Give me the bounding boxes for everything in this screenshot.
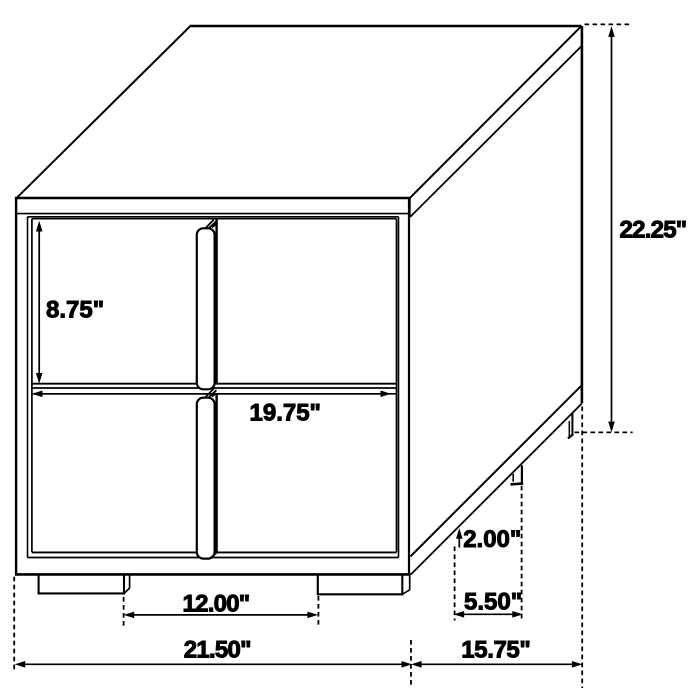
svg-text:22.25": 22.25" (620, 216, 687, 243)
svg-text:21.50": 21.50" (184, 637, 251, 664)
svg-text:5.50": 5.50" (464, 588, 522, 615)
svg-text:12.00": 12.00" (183, 590, 250, 617)
svg-text:2.00": 2.00" (463, 526, 521, 553)
svg-text:15.75": 15.75" (461, 636, 530, 663)
svg-text:8.75": 8.75" (46, 296, 104, 323)
svg-text:19.75": 19.75" (250, 400, 321, 427)
